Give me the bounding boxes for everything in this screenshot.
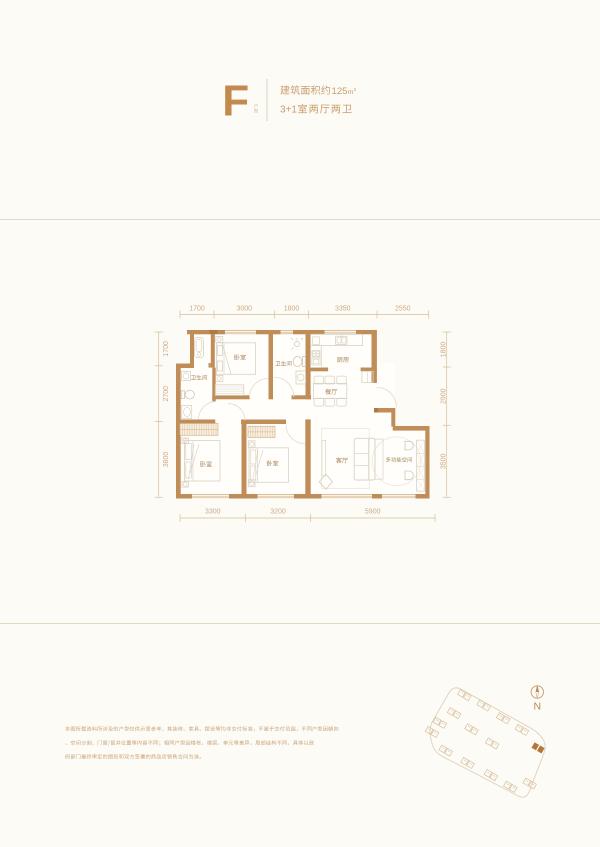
svg-text:3+1: 3+1 [280,105,297,116]
svg-text:5900: 5900 [365,509,381,516]
svg-text:1700: 1700 [163,341,170,357]
svg-text:3300: 3300 [205,509,221,516]
svg-text:3350: 3350 [335,306,351,313]
svg-text:F: F [222,77,249,126]
svg-text:1700: 1700 [189,306,205,313]
svg-text:2700: 2700 [163,386,170,402]
svg-text:2900: 2900 [440,388,447,404]
svg-text:1800: 1800 [284,306,300,313]
svg-text:3000: 3000 [237,306,253,313]
svg-text:3200: 3200 [270,509,286,516]
svg-text:1800: 1800 [440,342,447,358]
svg-text:125: 125 [332,86,348,97]
svg-text:2550: 2550 [395,306,411,313]
svg-text:3500: 3500 [440,453,447,469]
svg-text:N: N [534,701,542,713]
svg-text:3800: 3800 [163,452,170,468]
